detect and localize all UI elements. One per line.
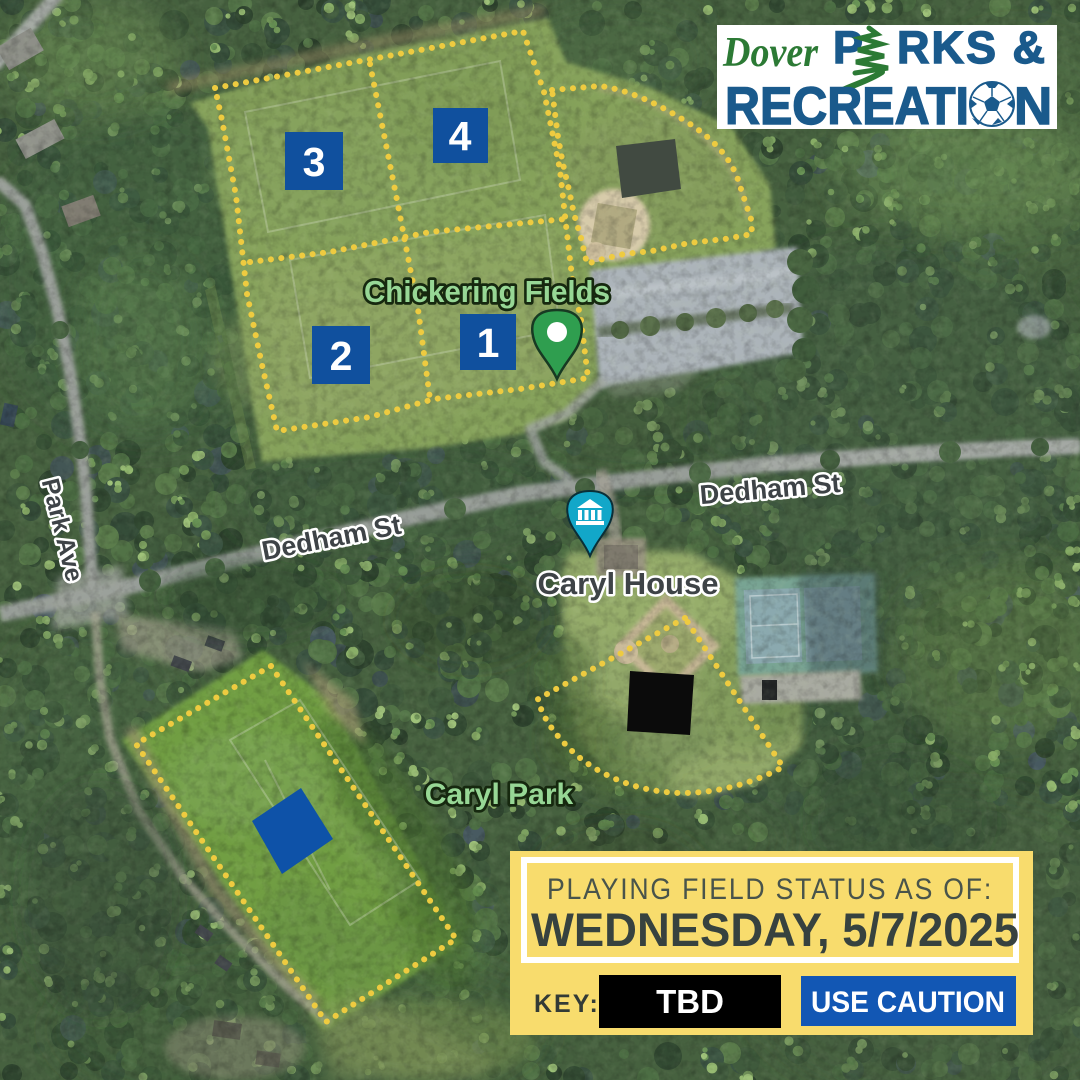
svg-text:Caryl House: Caryl House (538, 566, 719, 601)
svg-text:Caryl Park: Caryl Park (425, 778, 574, 811)
svg-text:N: N (1014, 77, 1052, 136)
svg-text:RECREATI: RECREATI (725, 77, 969, 136)
svg-text:2: 2 (330, 333, 353, 379)
svg-text:KEY:: KEY: (534, 990, 600, 1018)
svg-text:TBD: TBD (656, 983, 724, 1020)
svg-text:RKS &: RKS & (897, 22, 1047, 73)
svg-text:1: 1 (477, 320, 500, 366)
svg-text:3: 3 (303, 139, 326, 185)
svg-text:Chickering Fields: Chickering Fields (364, 274, 610, 309)
svg-text:PLAYING FIELD STATUS AS OF:: PLAYING FIELD STATUS AS OF: (547, 873, 993, 906)
svg-text:WEDNESDAY, 5/7/2025: WEDNESDAY, 5/7/2025 (531, 903, 1019, 956)
svg-text:4: 4 (449, 113, 472, 159)
svg-text:USE CAUTION: USE CAUTION (811, 986, 1005, 1019)
svg-text:Dover: Dover (722, 30, 818, 76)
